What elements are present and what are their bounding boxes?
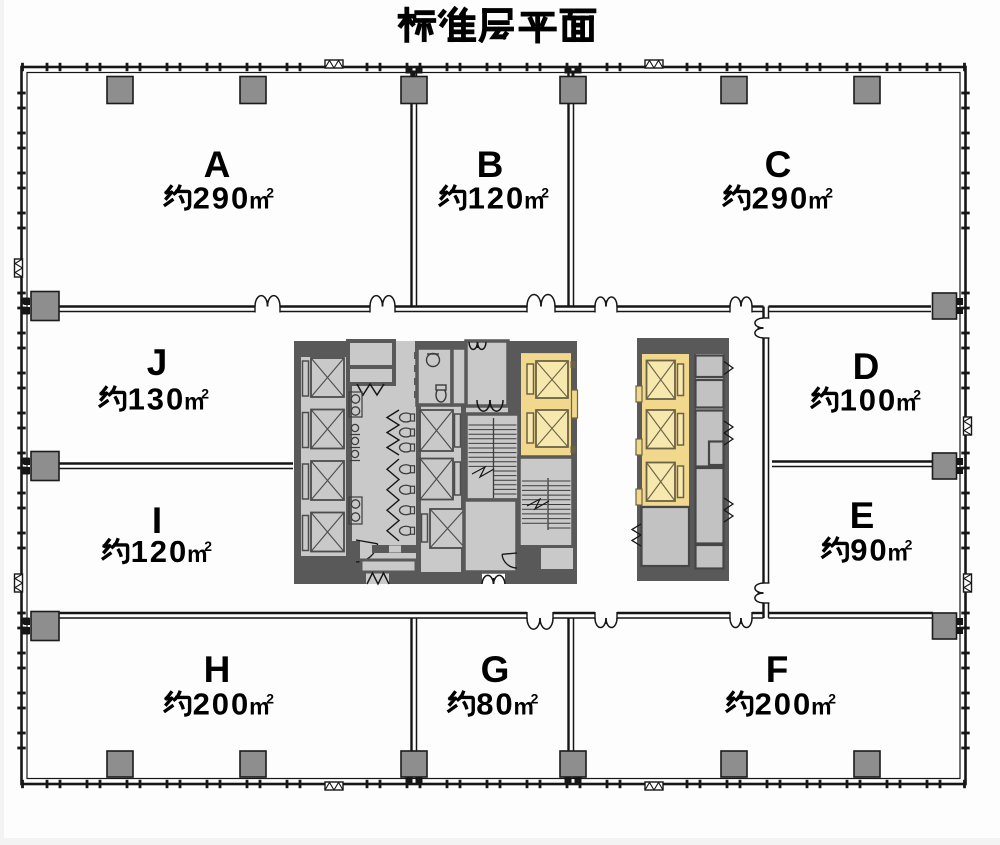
- svg-text:E: E: [850, 495, 875, 536]
- svg-text:B: B: [477, 144, 504, 185]
- svg-text:90: 90: [850, 533, 888, 568]
- svg-text:2: 2: [913, 386, 921, 402]
- svg-text:2: 2: [905, 536, 913, 552]
- svg-text:A: A: [204, 144, 231, 185]
- svg-text:2: 2: [266, 690, 274, 706]
- svg-text:120: 120: [468, 181, 525, 216]
- svg-text:J: J: [147, 342, 168, 383]
- svg-text:290: 290: [193, 181, 250, 216]
- svg-text:120: 120: [131, 534, 188, 569]
- svg-text:2: 2: [204, 538, 212, 554]
- svg-text:290: 290: [752, 181, 809, 216]
- svg-text:130: 130: [128, 382, 185, 417]
- svg-text:D: D: [853, 346, 880, 387]
- svg-text:G: G: [481, 649, 510, 690]
- svg-text:H: H: [204, 649, 231, 690]
- svg-text:2: 2: [825, 184, 833, 200]
- svg-text:2: 2: [531, 690, 539, 706]
- svg-text:2: 2: [266, 184, 274, 200]
- svg-text:200: 200: [193, 687, 250, 722]
- svg-text:2: 2: [541, 184, 549, 200]
- svg-text:200: 200: [755, 687, 812, 722]
- svg-text:C: C: [765, 144, 792, 185]
- svg-text:2: 2: [201, 385, 209, 401]
- svg-text:F: F: [766, 649, 789, 690]
- svg-text:80: 80: [476, 687, 514, 722]
- svg-text:2: 2: [828, 690, 836, 706]
- svg-text:100: 100: [840, 383, 897, 418]
